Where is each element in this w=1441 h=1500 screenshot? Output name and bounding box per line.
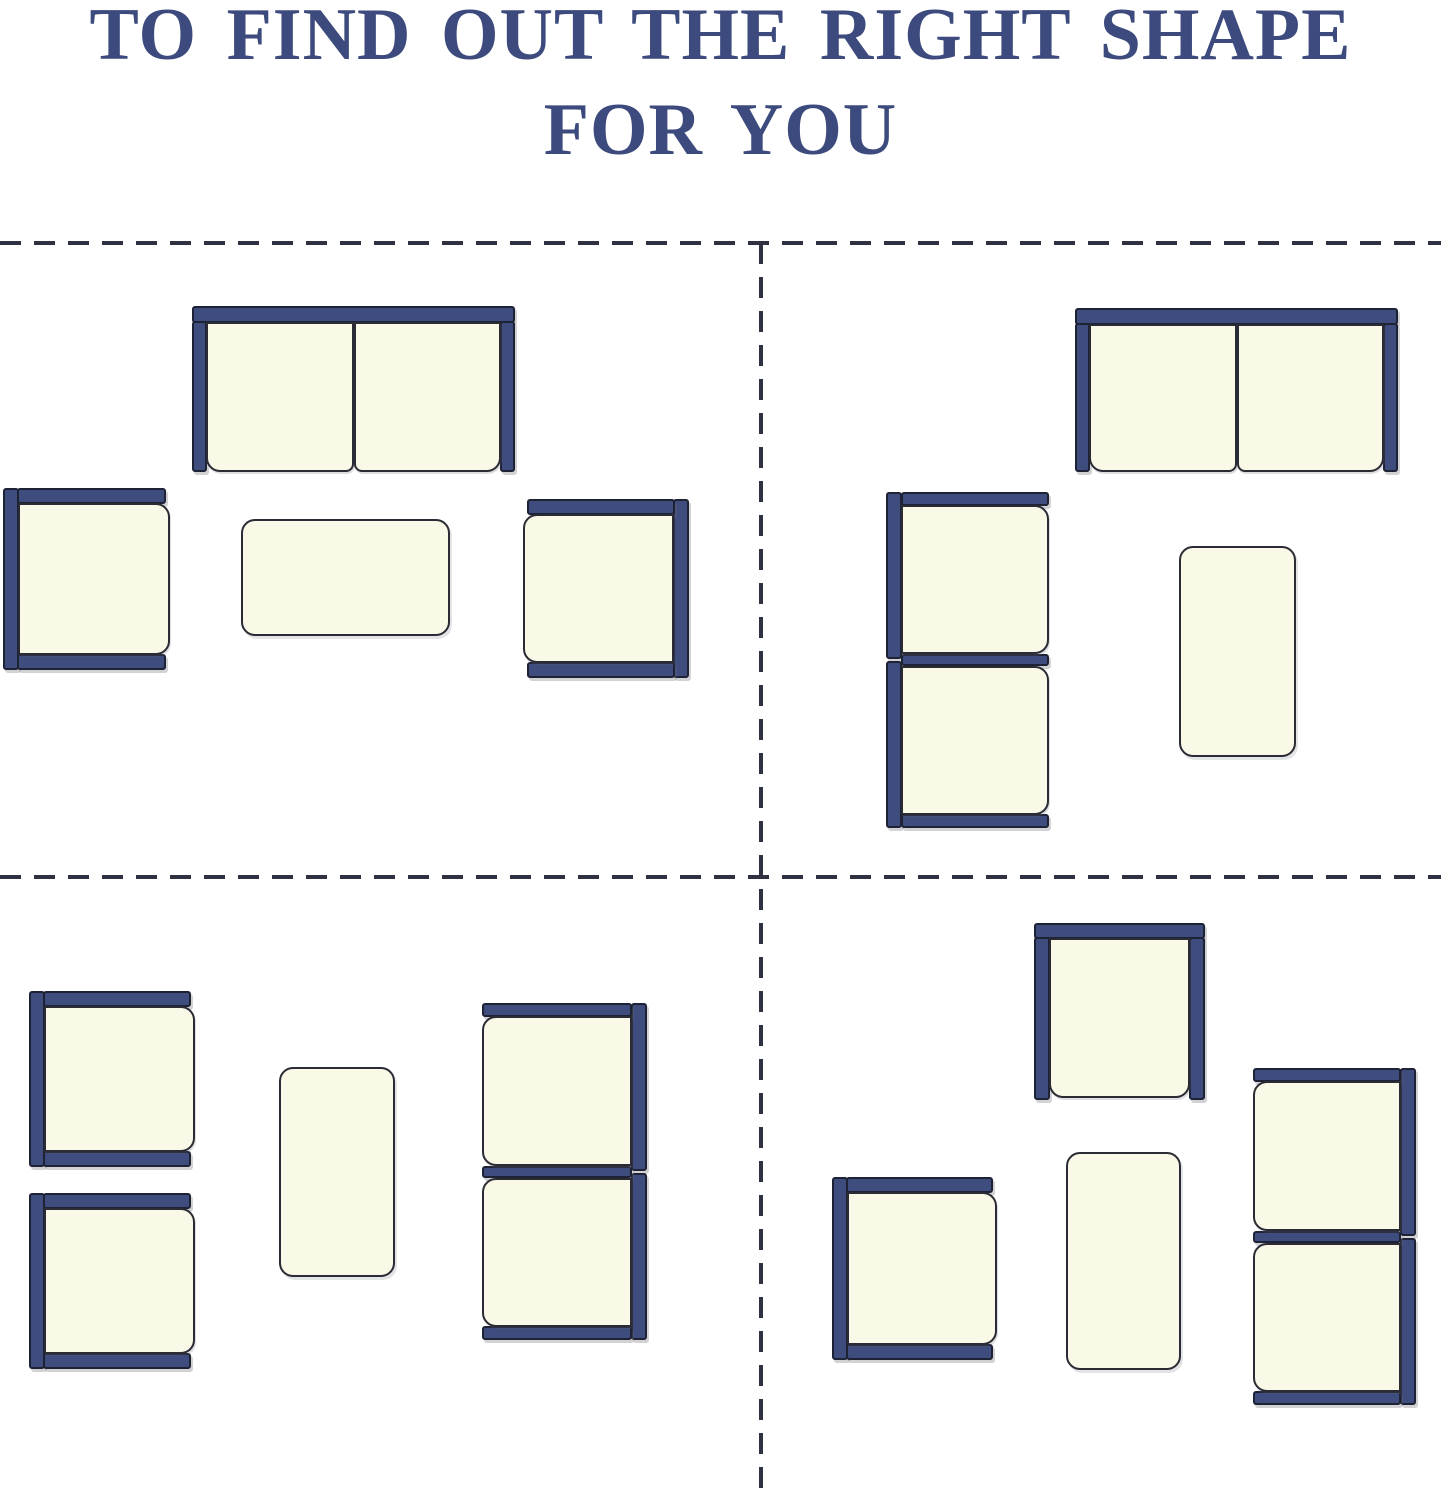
title-line-2: FOR YOU: [0, 83, 1441, 178]
two-seat-sofa: [481, 1003, 647, 1340]
sofa-back-bar: [886, 661, 902, 828]
seat-cushion: [901, 505, 1049, 654]
loveseat-2seat-sofa: [1075, 308, 1398, 472]
seat-cushion: [523, 514, 674, 663]
coffee-table: [1179, 546, 1296, 757]
chair-back-bar: [673, 499, 689, 678]
furniture-layout-diagram: TO FIND OUT THE RIGHT SHAPE FOR YOU: [0, 0, 1441, 1500]
sofa-arm-bottom: [901, 814, 1049, 828]
chair-arm-top: [846, 1177, 993, 1193]
seat-cushion: [1253, 1243, 1401, 1393]
chair-arm-bottom: [43, 1151, 191, 1167]
chair-back-bar: [832, 1177, 848, 1360]
chair-back-bar: [1034, 923, 1205, 939]
sofa-arm-left: [192, 321, 207, 472]
two-seat-sofa: [1252, 1068, 1416, 1405]
seat-cushion: [44, 1208, 195, 1354]
sofa-back-bar: [192, 306, 515, 323]
seat-cushion: [44, 1006, 195, 1152]
quadrant-divider-horizontal-2: [0, 875, 1441, 879]
chair-arm-bottom: [43, 1353, 191, 1369]
sofa-divider-bar: [1253, 1231, 1401, 1243]
sofa-arm-left: [1075, 323, 1090, 472]
sofa-divider-bar: [482, 1166, 632, 1178]
sofa-arm-top: [901, 492, 1049, 506]
coffee-table: [279, 1067, 395, 1277]
sofa-arm-top: [1253, 1068, 1401, 1082]
chair-arm-right: [1189, 937, 1205, 1100]
sofa-back-bar: [1400, 1068, 1416, 1236]
armchair: [832, 1177, 997, 1360]
sofa-back-bar: [631, 1173, 647, 1341]
chair-arm-top: [43, 991, 191, 1007]
armchair: [3, 488, 170, 670]
chair-back-bar: [3, 488, 19, 670]
chair-arm-bottom: [846, 1344, 993, 1360]
quadrant-divider-vertical: [759, 243, 763, 1500]
seat-cushion: [1253, 1081, 1401, 1231]
chair-arm-top: [43, 1193, 191, 1209]
seat-cushion: [901, 666, 1049, 815]
chair-arm-top: [527, 499, 675, 515]
seat-cushion: [1089, 324, 1237, 472]
armchair: [29, 991, 195, 1167]
coffee-table: [241, 519, 450, 636]
title-line-1: TO FIND OUT THE RIGHT SHAPE: [0, 0, 1441, 83]
chair-arm-left: [1034, 937, 1050, 1100]
sofa-back-bar: [631, 1003, 647, 1171]
sofa-back-bar: [1400, 1238, 1416, 1406]
sofa-arm-bottom: [1253, 1391, 1401, 1405]
loveseat-2seat-sofa: [192, 306, 515, 472]
sofa-back-bar: [886, 492, 902, 659]
seat-cushion: [482, 1178, 632, 1328]
armchair: [1034, 923, 1205, 1100]
seat-cushion: [18, 503, 170, 655]
sofa-divider-bar: [901, 654, 1049, 666]
chair-back-bar: [29, 1193, 45, 1369]
chair-arm-top: [17, 488, 166, 504]
chair-arm-bottom: [527, 662, 675, 678]
sofa-arm-right: [1383, 323, 1398, 472]
two-seat-sofa: [886, 492, 1050, 828]
armchair: [523, 499, 689, 678]
sofa-back-bar: [1075, 308, 1398, 325]
sofa-arm-top: [482, 1003, 632, 1017]
seat-cushion: [1049, 938, 1190, 1098]
quadrant-divider-horizontal-1: [0, 241, 1441, 245]
sofa-arm-bottom: [482, 1326, 632, 1340]
sofa-arm-right: [500, 321, 515, 472]
chair-back-bar: [29, 991, 45, 1167]
chair-arm-bottom: [17, 654, 166, 670]
coffee-table: [1066, 1152, 1181, 1370]
seat-cushion: [847, 1192, 997, 1345]
seat-cushion: [1237, 324, 1385, 472]
seat-cushion: [206, 322, 354, 472]
page-title: TO FIND OUT THE RIGHT SHAPE FOR YOU: [0, 0, 1441, 177]
seat-cushion: [354, 322, 502, 472]
armchair: [29, 1193, 195, 1369]
seat-cushion: [482, 1016, 632, 1166]
